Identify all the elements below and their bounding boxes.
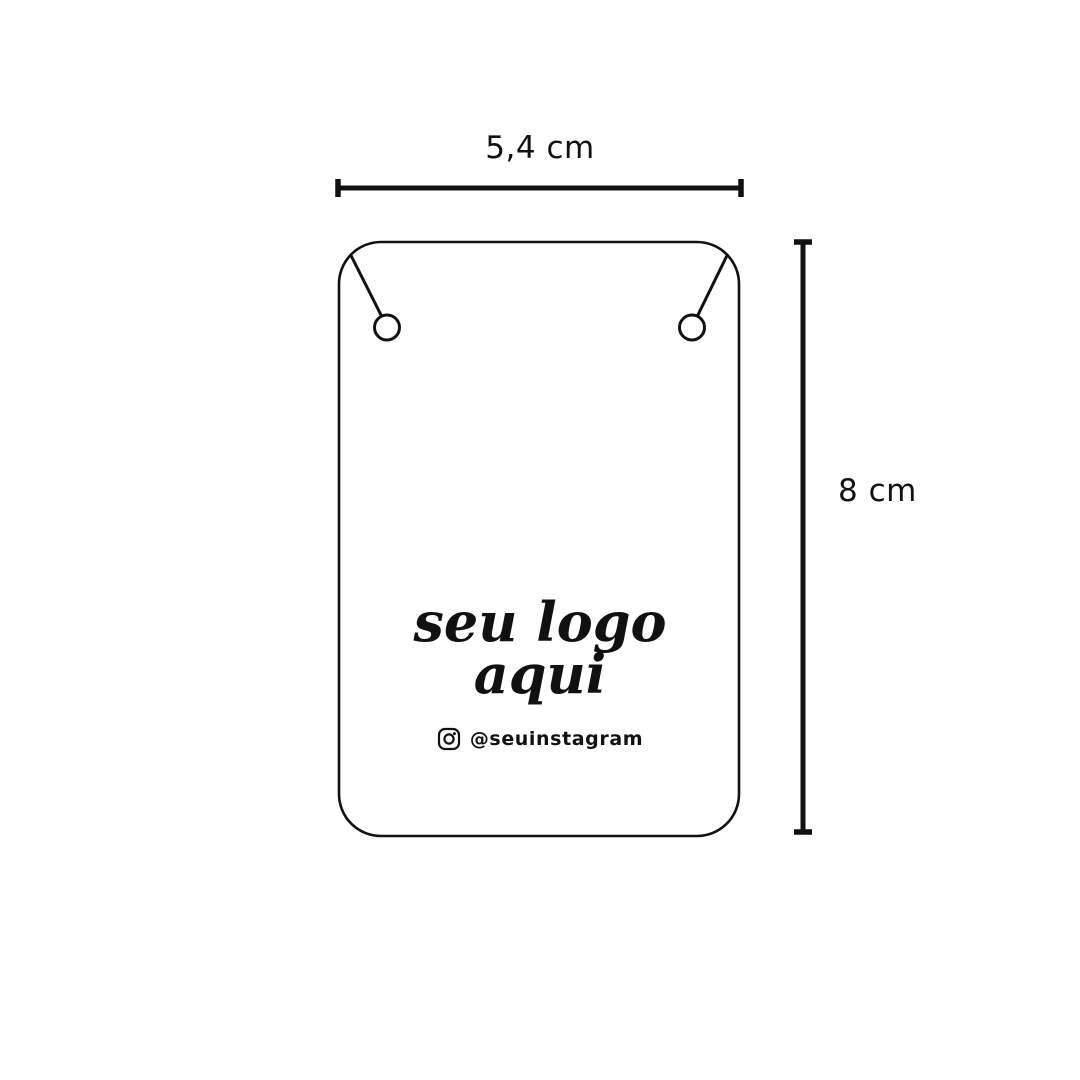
left-hole (375, 315, 400, 340)
width-dimension-label: 5,4 cm (339, 130, 741, 166)
right-hole (680, 315, 705, 340)
logo-line-1: seu logo (339, 596, 741, 648)
height-dimension-label: 8 cm (838, 473, 917, 509)
instagram-handle-text: @seuinstagram (470, 728, 643, 750)
logo-line-2: aqui (339, 648, 741, 700)
height-dimension-line (794, 242, 812, 832)
width-dimension-line (338, 179, 741, 197)
instagram-icon (437, 727, 461, 751)
instagram-row: @seuinstagram (339, 727, 741, 751)
logo-placeholder: seu logo aqui (339, 596, 741, 700)
mockup-stage: 5,4 cm 8 cm seu logo aqui @seuinstagram (0, 0, 1080, 1080)
